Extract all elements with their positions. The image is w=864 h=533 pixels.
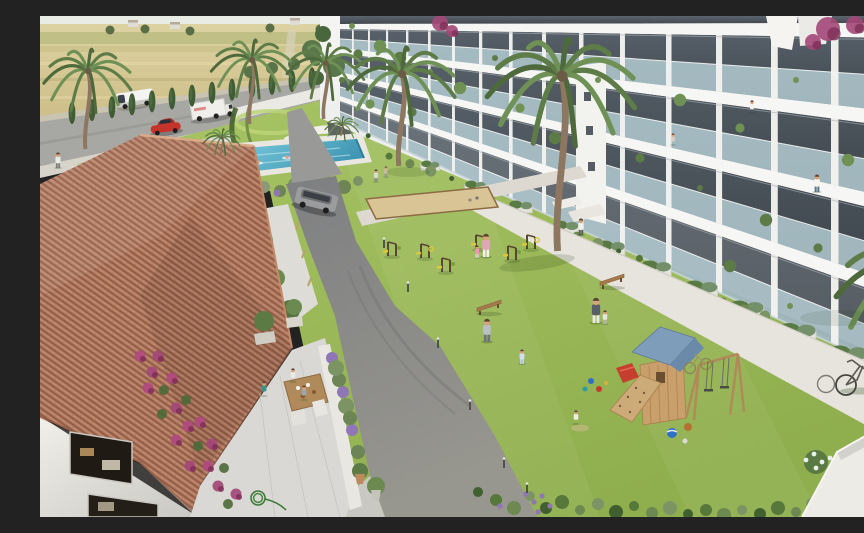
cypress-highlight <box>170 90 173 104</box>
large-pot <box>286 316 303 328</box>
balcony-partition <box>479 31 482 64</box>
balcony-partition <box>509 119 513 155</box>
balcony-partition <box>368 111 370 135</box>
balcony-plant <box>724 260 736 272</box>
property-aerial-render: Aerial 3D architectural rendering of a M… <box>40 16 864 517</box>
stair-window <box>586 126 593 135</box>
sand-patch <box>571 425 589 432</box>
cypress-highlight <box>150 92 153 106</box>
window-interior-linen <box>102 460 120 470</box>
palm-crown-center <box>249 57 255 63</box>
shrub <box>507 501 521 515</box>
balcony-partition <box>771 254 778 319</box>
shrub <box>328 360 344 376</box>
balcony-partition <box>831 37 838 106</box>
cypress-highlight <box>110 98 113 112</box>
farm-roof <box>128 20 138 23</box>
person-leg <box>520 359 522 364</box>
person-leg <box>579 229 581 235</box>
bougainvillea-bloom <box>176 408 182 414</box>
person-shadow <box>481 341 493 344</box>
base-shrub <box>636 255 643 262</box>
white-flowers <box>812 452 817 457</box>
shrub <box>555 495 569 509</box>
balcony-partition <box>771 183 778 243</box>
person-leg <box>374 178 375 182</box>
person-leg <box>385 173 386 177</box>
balcony-partition <box>352 29 354 49</box>
balcony-partition <box>716 170 722 225</box>
bollard-lamp <box>526 482 529 485</box>
balcony-partition <box>620 200 625 250</box>
swimmer <box>285 155 289 159</box>
person-leg <box>815 186 817 192</box>
palm-crown-center <box>557 71 568 82</box>
shrub <box>700 504 712 516</box>
person-torso <box>302 389 307 395</box>
petanque-ball <box>468 198 471 201</box>
person-torso <box>475 249 479 254</box>
lavender-shrub <box>547 503 552 508</box>
person-shadow <box>480 256 492 259</box>
person-leg <box>484 334 487 342</box>
bougainvillea-bloom <box>208 466 214 472</box>
bougainvillea-bloom <box>190 466 196 472</box>
balcony-partition <box>479 111 482 144</box>
gym-post <box>507 246 509 260</box>
gym-wheel <box>397 246 401 250</box>
balcony-partition <box>406 124 408 152</box>
white-ball <box>683 439 688 444</box>
balcony-partition <box>452 141 455 173</box>
bollard-lamp <box>383 237 386 240</box>
person-shadow <box>383 176 389 177</box>
balcony-plant <box>697 185 703 191</box>
person-shadow <box>474 257 481 259</box>
balcony-plant <box>365 99 374 108</box>
bougainvillea-bloom <box>200 422 206 428</box>
plate <box>306 383 310 387</box>
base-shrub <box>386 153 393 160</box>
balcony-plant <box>735 123 744 132</box>
balcony-plant <box>454 82 466 94</box>
truck-windshield <box>229 104 233 108</box>
bollard-lamp <box>407 281 410 284</box>
cypress-highlight <box>190 87 193 101</box>
bollard-lamp <box>469 399 472 402</box>
balcony-plant <box>674 94 686 106</box>
shrub <box>629 501 639 511</box>
shrub <box>351 445 365 459</box>
toy-bucket-red <box>596 386 602 392</box>
person-torso <box>291 372 295 378</box>
window-interior <box>98 502 114 511</box>
base-shrub <box>449 176 454 181</box>
toy-yellow <box>604 381 608 385</box>
gym-shadow <box>523 248 539 252</box>
orange-ball <box>684 423 692 431</box>
bollard-post <box>469 401 471 410</box>
person-leg <box>58 163 60 168</box>
planter-shrub <box>656 262 671 272</box>
petanque-ball <box>475 196 478 199</box>
balcony-partition <box>716 35 722 92</box>
vine-leaves <box>181 395 191 405</box>
lavender-shrub <box>346 424 358 436</box>
person-torso <box>374 173 378 178</box>
bench-shadow <box>476 312 502 316</box>
olive-tree <box>254 311 274 331</box>
balcony-partition <box>479 150 482 185</box>
bougainvillea-bloom <box>212 444 218 450</box>
gym-post <box>526 235 528 249</box>
person-leg <box>483 249 486 257</box>
person-shadow <box>373 181 380 183</box>
person-leg <box>386 173 387 177</box>
person-shadow <box>290 381 297 383</box>
lavender-shrub <box>274 190 281 197</box>
bollard-post <box>437 339 439 348</box>
vine-leaves <box>157 409 167 419</box>
serving-bowl <box>312 390 316 394</box>
balcony-partition <box>666 34 672 86</box>
planter-shrub <box>521 202 532 209</box>
person-shadow <box>573 423 580 425</box>
shrub <box>592 498 604 510</box>
bougainvillea-bloom <box>188 426 194 432</box>
person-shadow <box>518 363 526 365</box>
bollard-post <box>503 459 505 468</box>
vine-leaves <box>193 441 203 451</box>
balcony-plant <box>349 23 355 29</box>
bougainvillea-bloom <box>827 27 840 40</box>
person-leg <box>376 178 377 182</box>
corner-tree <box>315 26 331 42</box>
balcony-partition <box>479 71 482 104</box>
person-leg <box>593 314 596 323</box>
palm-crown-center <box>221 137 224 140</box>
balcony-partition <box>620 146 625 192</box>
distant-tree <box>186 27 195 36</box>
shrub <box>575 505 585 515</box>
base-shrub <box>366 133 371 138</box>
gym-post <box>441 258 443 272</box>
toy-bucket-blue <box>588 378 594 384</box>
person-shadow <box>300 399 308 401</box>
person-torso <box>603 314 607 320</box>
cypress-highlight <box>130 95 133 109</box>
person-leg <box>581 229 583 235</box>
bollard-lamp <box>503 457 506 460</box>
balcony-plant <box>339 77 345 83</box>
person-shadow <box>577 234 586 236</box>
base-shrub <box>405 159 414 168</box>
white-flowers <box>814 466 819 471</box>
person-leg <box>56 163 58 168</box>
person-leg <box>605 319 607 324</box>
balcony-partition <box>771 110 778 172</box>
olive-tree <box>286 299 302 315</box>
balcony-partition <box>831 198 838 264</box>
lavender-shrub <box>535 509 540 514</box>
gym-shadow <box>384 255 400 259</box>
person-shadow <box>602 323 609 325</box>
white-flowers <box>828 456 833 461</box>
shrub <box>473 487 483 497</box>
balcony-partition <box>716 234 722 293</box>
person-torso <box>55 156 60 163</box>
render-canvas <box>40 16 864 517</box>
toy-bucket-teal <box>583 387 588 392</box>
shrub <box>343 411 357 425</box>
palm-crown-center <box>341 124 344 127</box>
farm-roof <box>170 22 180 25</box>
bench-leg <box>497 304 499 308</box>
bougainvillea-bloom <box>218 486 224 492</box>
person-torso <box>750 104 754 109</box>
bollard-post <box>407 283 409 292</box>
shrub <box>791 507 801 517</box>
person-torso <box>592 304 600 315</box>
bench-leg <box>620 278 622 282</box>
person-leg <box>477 254 478 258</box>
balcony-partition <box>509 32 513 68</box>
lavender-shrub <box>337 386 349 398</box>
bougainvillea-bloom <box>158 356 164 362</box>
gym-post <box>387 242 389 256</box>
cypress-highlight <box>270 75 273 89</box>
window-interior-shelf <box>80 448 94 456</box>
balcony-partition <box>831 118 838 186</box>
cypress-highlight <box>210 84 213 98</box>
clubhouse-window <box>70 432 132 484</box>
bollard-post <box>383 239 385 248</box>
balcony-partition <box>428 99 431 127</box>
gym-wheel <box>517 250 521 254</box>
gym-post <box>395 244 397 256</box>
bollard-post <box>526 484 528 493</box>
lavender-shrub <box>497 503 502 508</box>
gym-shadow <box>417 257 433 261</box>
palm-crown-center <box>323 60 329 66</box>
person-shadow <box>670 144 676 145</box>
palm-crown-center <box>398 70 406 78</box>
person-shadow <box>260 395 268 397</box>
person-leg <box>817 186 819 192</box>
person-shadow <box>749 112 756 114</box>
bougainvillea-bloom <box>140 356 146 362</box>
gym-post <box>515 248 517 260</box>
bougainvillea-bloom <box>148 388 154 394</box>
balcony-plant <box>492 55 498 61</box>
bougainvillea-bloom <box>172 378 178 384</box>
terrace-chair <box>290 409 307 426</box>
cypress-highlight <box>230 81 233 95</box>
gym-shadow <box>438 271 454 275</box>
balcony-partition <box>716 103 722 159</box>
bougainvillea-bloom <box>813 41 822 50</box>
lavender-shrub <box>539 493 544 498</box>
distant-tree <box>106 26 115 35</box>
gym-post <box>420 244 422 258</box>
balcony-plant <box>635 153 644 162</box>
bollard-lamp <box>437 337 440 340</box>
balcony-partition <box>352 105 354 127</box>
gym-post <box>449 260 451 272</box>
person-leg <box>487 334 490 342</box>
planter-shrub <box>566 222 578 230</box>
person-torso <box>520 353 525 359</box>
balcony-plant <box>813 243 822 252</box>
balcony-partition <box>386 117 388 142</box>
person-torso <box>574 414 578 420</box>
balcony-plant <box>842 154 854 166</box>
bougainvillea-bloom <box>452 30 459 37</box>
balcony-plant <box>793 77 799 83</box>
person-leg <box>475 254 476 258</box>
person-leg <box>522 359 524 364</box>
balcony-plant <box>549 132 561 144</box>
gym-wheel <box>451 262 455 266</box>
stair-window <box>584 92 591 101</box>
distant-tree <box>266 24 275 33</box>
balcony-partition <box>428 132 431 162</box>
person-leg <box>597 314 600 323</box>
balcony-partition <box>452 105 455 135</box>
balcony-partition <box>666 157 672 207</box>
vine-leaves <box>159 385 169 395</box>
balcony-plant <box>515 103 524 112</box>
shrub <box>353 176 363 186</box>
bench-shadow <box>599 286 625 290</box>
person-shadow <box>54 167 62 169</box>
person-torso <box>671 136 675 141</box>
balcony-plant <box>595 77 601 83</box>
bougainvillea-bloom <box>236 494 242 500</box>
palm-crown-center <box>85 68 92 75</box>
person-leg <box>486 249 489 257</box>
person-shadow <box>813 191 822 193</box>
shrub <box>663 501 677 515</box>
balcony-partition <box>368 29 370 51</box>
person-torso <box>483 325 491 335</box>
palm-shadow <box>386 167 430 177</box>
blue-ball <box>667 428 677 438</box>
balcony-partition <box>666 96 672 147</box>
vine-leaves <box>219 463 229 473</box>
person-torso <box>578 223 583 230</box>
white-flowers <box>804 458 809 463</box>
person-shadow <box>590 321 603 324</box>
bougainvillea-bloom <box>152 372 158 378</box>
distant-tree <box>141 25 150 34</box>
balcony-plant <box>760 214 772 226</box>
bougainvillea-bloom <box>176 440 182 446</box>
bougainvillea-bloom <box>855 24 864 34</box>
person-torso <box>814 179 820 187</box>
person-torso <box>482 240 490 250</box>
lavender-shrub <box>531 499 536 504</box>
balcony-partition <box>542 127 546 166</box>
stair-window <box>588 162 595 171</box>
farm-roof <box>290 18 300 21</box>
white-flowers <box>820 460 825 465</box>
shrub <box>771 501 785 515</box>
person-leg <box>603 319 605 324</box>
plate <box>296 386 300 390</box>
balcony-plant <box>787 303 793 309</box>
person-torso <box>262 385 267 391</box>
shrub <box>737 505 747 515</box>
